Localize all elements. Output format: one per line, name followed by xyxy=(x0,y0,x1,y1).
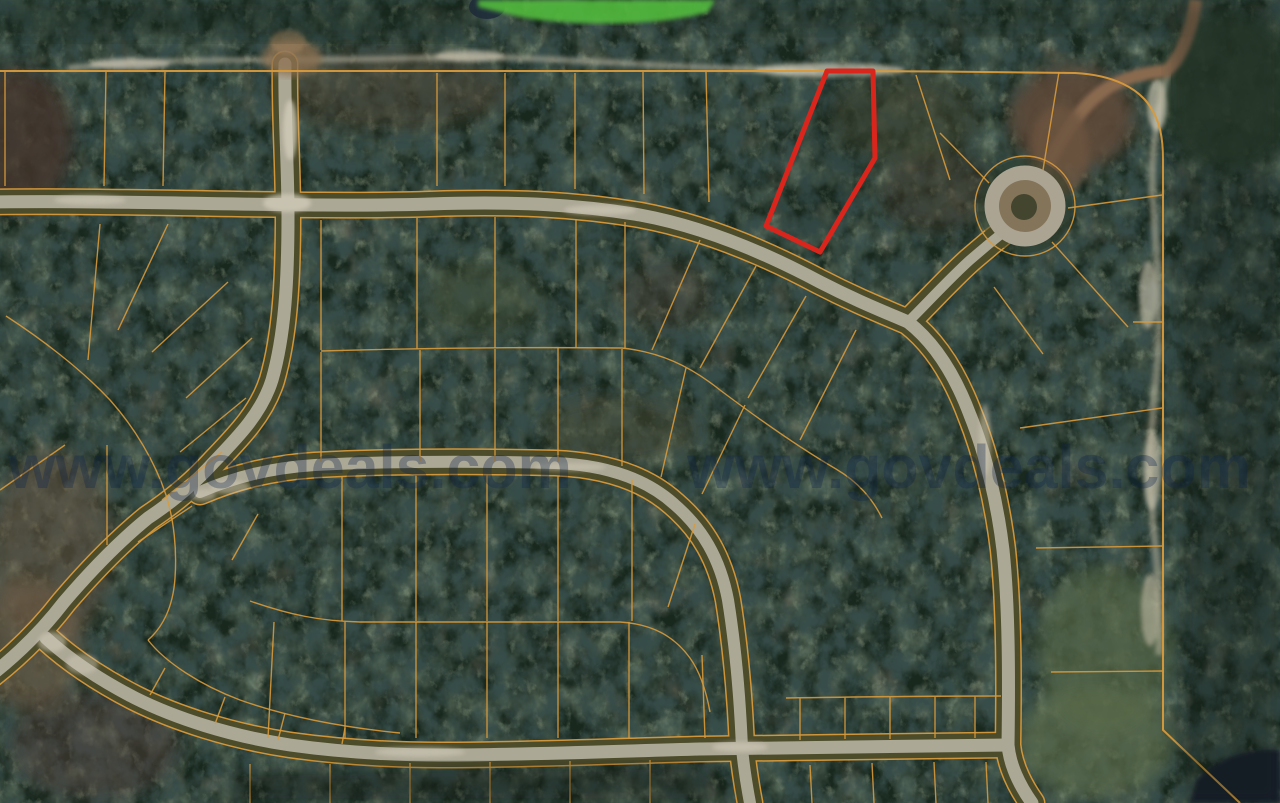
svg-text:www.govdeals.com: www.govdeals.com xyxy=(686,433,1251,501)
svg-text:www.govdeals.com: www.govdeals.com xyxy=(7,433,572,501)
